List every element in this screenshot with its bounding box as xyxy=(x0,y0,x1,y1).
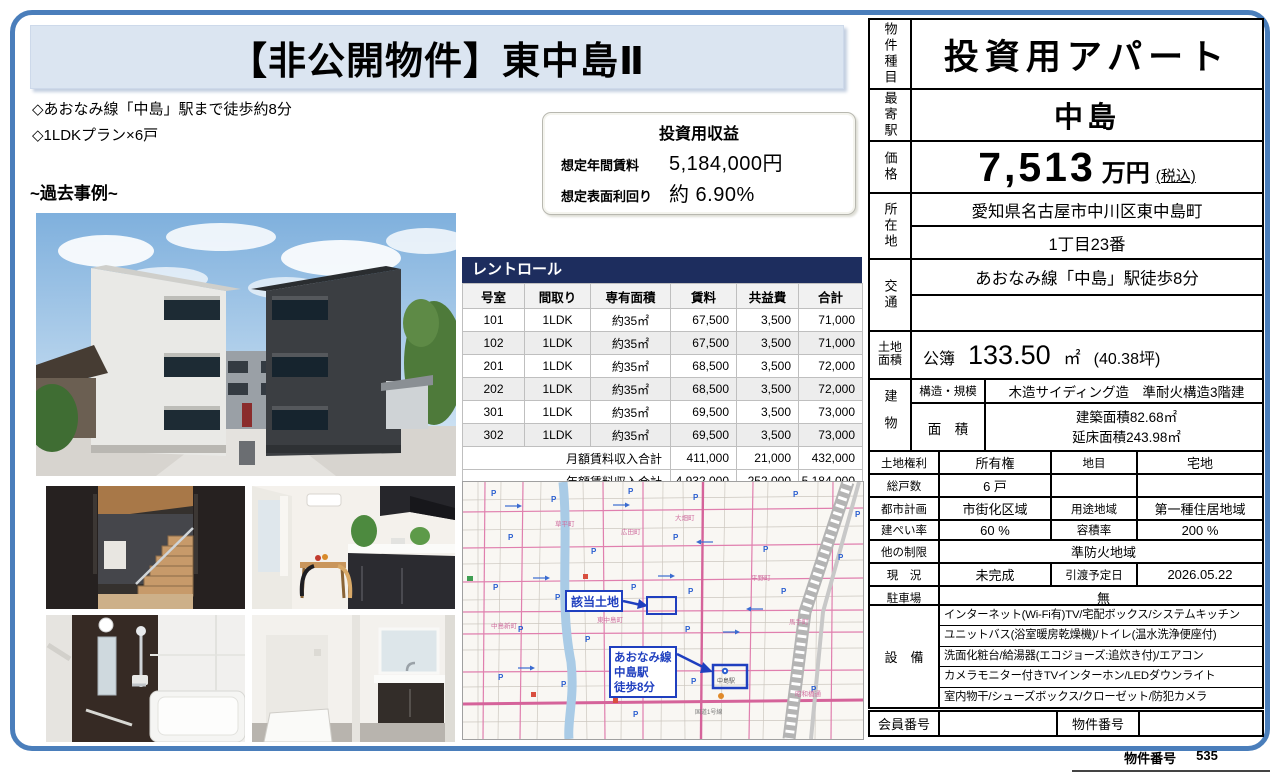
price-tax-note: (税込) xyxy=(1156,165,1196,186)
yield-value: 約 6.90% xyxy=(669,178,755,207)
income-title: 投資用収益 xyxy=(543,120,855,144)
map-area-label: 草平町 xyxy=(555,519,575,528)
price-value: 7,513 xyxy=(978,144,1096,191)
title-banner: 【非公開物件】東中島Ⅱ xyxy=(30,25,844,89)
building-area-row: 面 積 建築面積82.68㎡ 延床面積243.98㎡ xyxy=(869,403,1263,453)
table-row: 2021LDK約35㎡ 68,5003,50072,000 xyxy=(463,378,863,401)
current-status-value: 未完成 xyxy=(939,563,1051,586)
parking-icon: P xyxy=(793,490,799,499)
kitchen-photo xyxy=(252,486,455,609)
location-line1: 愛知県名古屋市中川区東中島町 xyxy=(911,193,1263,226)
parking-icon: P xyxy=(551,495,557,504)
location-label: 所在地 xyxy=(884,202,897,250)
table-row: 都市計画 市街化区域 用途地域 第一種住居地域 xyxy=(869,497,1263,520)
location-row: 所在地 愛知県名古屋市中川区東中島町 xyxy=(869,193,1263,226)
footer-property-number: 物件番号 535 xyxy=(1072,748,1270,772)
footer-property-number-label: 物件番号 xyxy=(1124,748,1176,767)
property-type-label: 物件種目 xyxy=(884,22,897,86)
parking-icon: P xyxy=(631,583,637,592)
bathroom-photo xyxy=(46,615,245,742)
parking-icon: P xyxy=(628,487,634,496)
equipment-table: 設 備 インターネット(Wi-Fi有)TV/宅配ボックス/システムキッチン ユニ… xyxy=(868,604,1264,709)
rent-roll-table: 号室 間取り 専有面積 賃料 共益費 合計 1011LDK約35㎡ 67,500… xyxy=(462,283,863,493)
total-units-value: 6 戸 xyxy=(939,474,1051,497)
equipment-line: 室内物干/シューズボックス/クローゼット/防犯カメラ xyxy=(940,688,1262,707)
col-layout: 間取り xyxy=(525,284,591,309)
col-fee: 共益費 xyxy=(737,284,799,309)
parking-icon: P xyxy=(555,593,561,602)
monthly-total-row: 月額賃料収入合計 411,000 21,000 432,000 xyxy=(463,447,863,470)
entrance-stairs-photo xyxy=(46,486,245,609)
table-row: 1021LDK約35㎡ 67,5003,50071,000 xyxy=(463,332,863,355)
parking-icon: P xyxy=(763,545,769,554)
delivery-date-value: 2026.05.22 xyxy=(1137,563,1263,586)
property-number-value xyxy=(1139,711,1263,736)
table-row: 総戸数 6 戸 xyxy=(869,474,1263,497)
land-rights-label: 土地権利 xyxy=(869,451,939,474)
floor-ratio-value: 200 % xyxy=(1137,520,1263,540)
map-area-label: 平野町 xyxy=(751,574,771,582)
map-area-label: 馬手町 xyxy=(789,617,809,626)
property-number-label: 物件番号 xyxy=(1057,711,1139,736)
land-area-row: 土地面積 公簿 133.50 ㎡ (40.38坪) xyxy=(869,331,1263,379)
land-area-tsubo: (40.38坪) xyxy=(1094,345,1161,369)
station-note-line: 徒歩8分 xyxy=(613,680,655,694)
parking-icon: P xyxy=(491,489,497,498)
map-area-label: 昭和橋通 xyxy=(795,689,822,698)
table-row: 他の制限 準防火地域 xyxy=(869,540,1263,563)
land-area-unit: ㎡ xyxy=(1064,344,1081,369)
table-row: 1011LDK約35㎡ 67,5003,50071,000 xyxy=(463,309,863,332)
rent-roll-title: レントロール xyxy=(462,257,862,283)
building-label: 建物 xyxy=(884,389,897,443)
rent-roll: レントロール 号室 間取り 専有面積 賃料 共益費 合計 1011LDK約35㎡… xyxy=(462,257,862,493)
annual-rent-value: 5,184,000円 xyxy=(669,147,783,176)
land-area-label: 土地面積 xyxy=(876,341,904,369)
rent-roll-header-row: 号室 間取り 専有面積 賃料 共益費 合計 xyxy=(463,284,863,309)
station-note-line: あおなみ線 xyxy=(614,650,672,664)
map-area-label: 中島新町 xyxy=(491,621,518,630)
table-row: 建ぺい率 60 % 容積率 200 % xyxy=(869,520,1263,540)
current-status-label: 現 況 xyxy=(869,563,939,586)
location-map: P P P P P P P P P P P P P P P P P P P P xyxy=(462,481,864,740)
feature-bullet: ◇1LDKプラン×6戸 xyxy=(32,123,292,149)
city-planning-value: 市街化区域 xyxy=(939,497,1051,520)
parking-icon: P xyxy=(855,510,861,519)
price-label: 価格 xyxy=(884,151,897,183)
price-row: 価格 7,513 万円 (税込) xyxy=(869,141,1263,193)
property-summary-table: 物件種目 投資用アパート 最寄駅 中島 価格 7,513 万円 (税込) 所在地… xyxy=(868,18,1264,454)
parking-icon: P xyxy=(498,673,504,682)
floor-ratio-label: 容積率 xyxy=(1051,520,1137,540)
parking-icon: P xyxy=(838,553,844,562)
zoning-value: 第一種住居地域 xyxy=(1137,497,1263,520)
parking-icon: P xyxy=(518,625,524,634)
total-units-label: 総戸数 xyxy=(869,474,939,497)
delivery-date-label: 引渡予定日 xyxy=(1051,563,1137,586)
land-category-label: 地目 xyxy=(1051,451,1137,474)
coverage-ratio-value: 60 % xyxy=(939,520,1051,540)
parking-icon: P xyxy=(781,587,787,596)
parking-icon: P xyxy=(561,680,567,689)
property-type-value: 投資用アパート xyxy=(911,19,1263,89)
member-number-label: 会員番号 xyxy=(869,711,939,736)
transport-label: 交通 xyxy=(884,279,897,311)
building-area-label: 面 積 xyxy=(911,403,985,453)
table-row: 3021LDK約35㎡ 69,5003,50073,000 xyxy=(463,424,863,447)
equipment-label: 設 備 xyxy=(869,605,939,708)
transport-line2 xyxy=(911,295,1263,331)
equipment-line: カメラモニター付きTVインターホン/LEDダウンライト xyxy=(940,667,1262,687)
investment-income-box: 投資用収益 想定年間賃料 5,184,000円 想定表面利回り 約 6.90% xyxy=(542,112,856,215)
nearest-station-label: 最寄駅 xyxy=(884,91,897,139)
parking-icon: P xyxy=(585,635,591,644)
yield-label: 想定表面利回り xyxy=(561,186,669,205)
site-label: 該当土地 xyxy=(571,594,619,609)
feature-bullet: ◇あおなみ線「中島」駅まで徒歩約8分 xyxy=(32,97,292,123)
price-unit: 万円 xyxy=(1102,153,1150,188)
equipment-line: ユニットバス(浴室暖房乾燥機)/トイレ(温水洗浄便座付) xyxy=(940,626,1262,646)
building-area-line1: 建築面積82.68㎡ xyxy=(992,408,1261,428)
structure-label: 構造・規模 xyxy=(911,379,985,403)
map-road-label: 国道1号線 xyxy=(695,708,722,716)
table-row: 3011LDK約35㎡ 69,5003,50073,000 xyxy=(463,401,863,424)
transport-line1: あおなみ線「中島」駅徒歩8分 xyxy=(911,259,1263,295)
page-title: 【非公開物件】東中島Ⅱ xyxy=(229,30,645,85)
land-rights-value: 所有権 xyxy=(939,451,1051,474)
washroom-photo xyxy=(252,615,455,742)
table-row: 2011LDK約35㎡ 68,5003,50072,000 xyxy=(463,355,863,378)
station-name: 中島駅 xyxy=(717,677,735,685)
other-restrictions-value: 準防火地域 xyxy=(939,540,1263,563)
zoning-label: 用途地域 xyxy=(1051,497,1137,520)
footer-property-number-value: 535 xyxy=(1196,748,1218,767)
member-number-table: 会員番号 物件番号 xyxy=(868,710,1264,737)
col-area: 専有面積 xyxy=(591,284,671,309)
property-type-row: 物件種目 投資用アパート xyxy=(869,19,1263,89)
city-planning-label: 都市計画 xyxy=(869,497,939,520)
parking-icon: P xyxy=(691,677,697,686)
parking-icon: P xyxy=(633,710,639,719)
nearest-station-row: 最寄駅 中島 xyxy=(869,89,1263,141)
map-area-label: 大畑町 xyxy=(675,513,695,522)
parking-icon: P xyxy=(685,625,691,634)
map-area-label: 東中島町 xyxy=(597,615,624,624)
building-area-line2: 延床面積243.98㎡ xyxy=(992,428,1261,448)
col-room: 号室 xyxy=(463,284,525,309)
flyer-sheet: 【非公開物件】東中島Ⅱ ◇あおなみ線「中島」駅まで徒歩約8分 ◇1LDKプラン×… xyxy=(0,0,1279,776)
coverage-ratio-label: 建ぺい率 xyxy=(869,520,939,540)
table-row: 現 況 未完成 引渡予定日 2026.05.22 xyxy=(869,563,1263,586)
feature-bullets: ◇あおなみ線「中島」駅まで徒歩約8分 ◇1LDKプラン×6戸 xyxy=(32,97,292,149)
member-number-value xyxy=(939,711,1057,736)
equipment-line: インターネット(Wi-Fi有)TV/宅配ボックス/システムキッチン xyxy=(940,606,1262,626)
location-line2: 1丁目23番 xyxy=(911,226,1263,259)
col-rent: 賃料 xyxy=(671,284,737,309)
parking-icon: P xyxy=(688,587,694,596)
structure-value: 木造サイディング造 準耐火構造3階建 xyxy=(985,379,1263,403)
col-total: 合計 xyxy=(799,284,863,309)
other-restrictions-label: 他の制限 xyxy=(869,540,939,563)
parking-icon: P xyxy=(591,547,597,556)
land-category-value: 宅地 xyxy=(1137,451,1263,474)
transport-row: 交通 あおなみ線「中島」駅徒歩8分 xyxy=(869,259,1263,295)
parking-icon: P xyxy=(673,533,679,542)
table-row: 土地権利 所有権 地目 宅地 xyxy=(869,451,1263,474)
nearest-station-value: 中島 xyxy=(911,89,1263,141)
map-area-label: 広田町 xyxy=(621,527,641,536)
structure-row: 建物 構造・規模 木造サイディング造 準耐火構造3階建 xyxy=(869,379,1263,403)
annual-rent-label: 想定年間賃料 xyxy=(561,155,669,174)
equipment-line: 洗面化粧台/給湯器(エコジョーズ:追炊き付)/エアコン xyxy=(940,647,1262,667)
land-register: 公簿 xyxy=(923,345,955,369)
parking-icon: P xyxy=(508,533,514,542)
past-example-heading: ~過去事例~ xyxy=(30,179,118,204)
parking-icon: P xyxy=(493,583,499,592)
exterior-photo xyxy=(36,213,456,476)
parking-icon: P xyxy=(693,493,699,502)
station-note-line: 中島駅 xyxy=(614,665,649,679)
land-area-value: 133.50 xyxy=(968,340,1051,371)
